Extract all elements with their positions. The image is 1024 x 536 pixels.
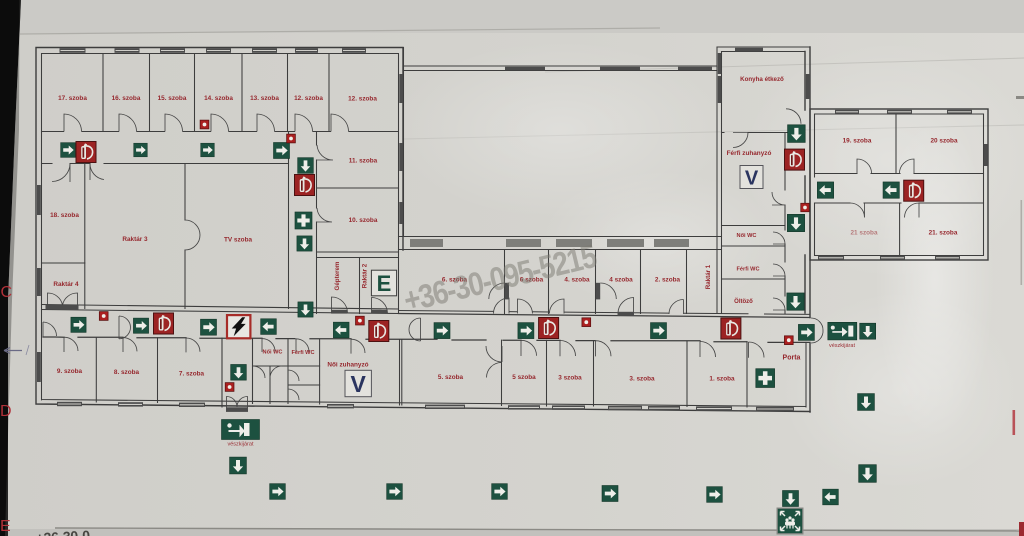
svg-text:3. szoba: 3. szoba xyxy=(629,376,655,383)
svg-text:Raktár 1: Raktár 1 xyxy=(705,264,712,289)
svg-text:8. szoba: 8. szoba xyxy=(114,369,140,376)
svg-text:Férfi WC: Férfi WC xyxy=(737,267,760,273)
svg-text:V: V xyxy=(745,168,759,190)
svg-text:Gépterem: Gépterem xyxy=(334,261,341,290)
svg-text:15. szoba: 15. szoba xyxy=(158,95,187,102)
svg-text:Porta: Porta xyxy=(783,355,801,362)
svg-text:2. szoba: 2. szoba xyxy=(655,277,681,284)
svg-text:16. szoba: 16. szoba xyxy=(112,95,141,102)
svg-text:Konyha étkező: Konyha étkező xyxy=(740,76,784,83)
svg-text:21 szoba: 21 szoba xyxy=(851,230,878,237)
svg-text:17. szoba: 17. szoba xyxy=(58,95,87,102)
svg-text:9. szoba: 9. szoba xyxy=(57,368,83,375)
svg-text:18. szoba: 18. szoba xyxy=(50,212,79,219)
svg-text:E: E xyxy=(377,271,392,296)
svg-text:10. szoba: 10. szoba xyxy=(349,217,378,224)
svg-text:Női WC: Női WC xyxy=(263,350,283,356)
svg-text:21. szoba: 21. szoba xyxy=(929,230,958,237)
svg-text:5. szoba: 5. szoba xyxy=(438,374,464,381)
svg-text:vészkijárat: vészkijárat xyxy=(228,442,254,448)
svg-text:13. szoba: 13. szoba xyxy=(250,95,279,102)
svg-text:V: V xyxy=(351,371,367,397)
svg-text:Öltöző: Öltöző xyxy=(734,298,753,305)
svg-text:1. szoba: 1. szoba xyxy=(709,376,735,383)
svg-text:Férfi zuhanyzó: Férfi zuhanyzó xyxy=(727,150,772,157)
svg-text:Férfi WC: Férfi WC xyxy=(292,350,315,356)
svg-text:14. szoba: 14. szoba xyxy=(204,95,233,102)
svg-text:12. szoba: 12. szoba xyxy=(348,96,377,103)
svg-text:D: D xyxy=(0,403,12,420)
svg-text:20 szoba: 20 szoba xyxy=(931,138,958,145)
svg-text:TV szoba: TV szoba xyxy=(224,237,252,244)
svg-text:vészkijárat: vészkijárat xyxy=(829,343,855,349)
svg-text:12. szoba: 12. szoba xyxy=(294,95,323,102)
svg-text:Női zuhanyzó: Női zuhanyzó xyxy=(327,362,368,369)
svg-text:Raktár 3: Raktár 3 xyxy=(122,236,148,243)
svg-text:4 szoba: 4 szoba xyxy=(609,277,633,284)
svg-text:Női WC: Női WC xyxy=(737,233,757,239)
svg-text:7. szoba: 7. szoba xyxy=(179,371,205,378)
svg-text:5 szoba: 5 szoba xyxy=(512,374,536,381)
svg-text:11. szoba: 11. szoba xyxy=(349,158,378,165)
svg-text:Raktár 2: Raktár 2 xyxy=(362,263,369,288)
svg-text:3 szoba: 3 szoba xyxy=(558,375,582,382)
svg-text:Raktár 4: Raktár 4 xyxy=(53,281,79,288)
svg-text:E: E xyxy=(0,518,11,535)
svg-text:19. szoba: 19. szoba xyxy=(843,138,872,145)
svg-text:C: C xyxy=(1,284,13,301)
